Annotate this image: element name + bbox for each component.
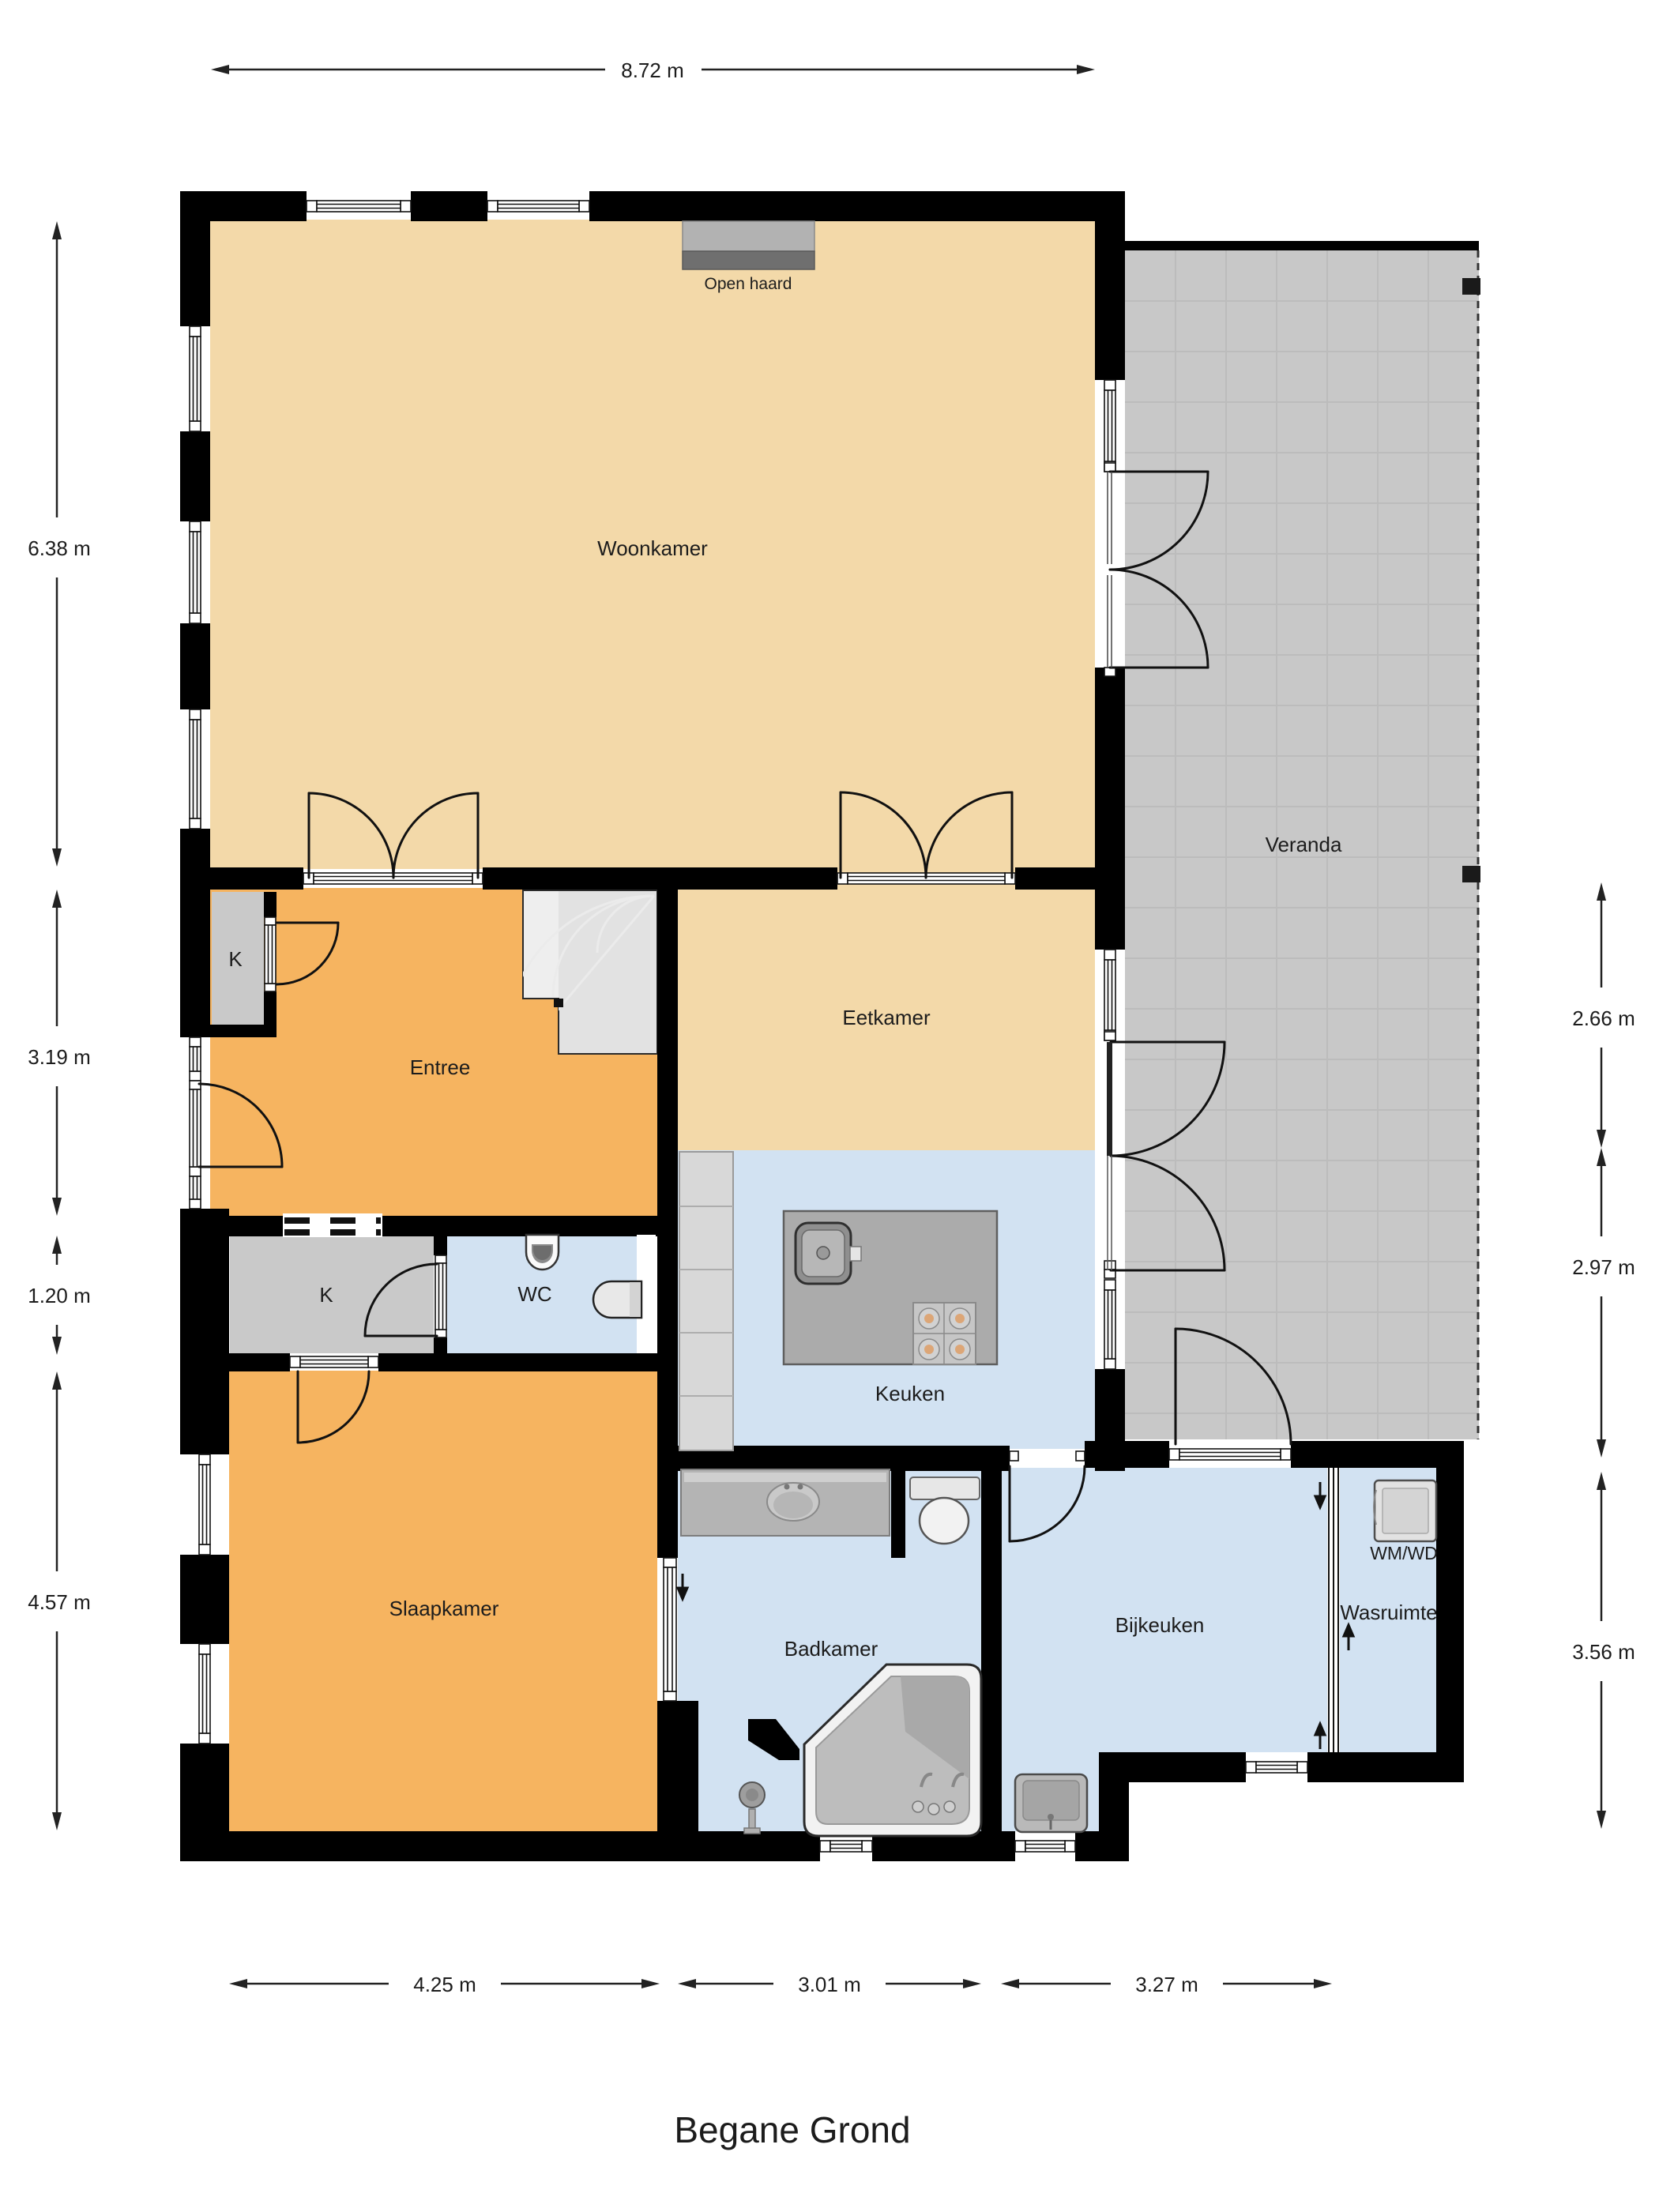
svg-text:Veranda: Veranda [1266, 833, 1342, 856]
svg-text:3.27 m: 3.27 m [1135, 1973, 1198, 1996]
svg-text:Woonkamer: Woonkamer [597, 536, 708, 560]
svg-text:Keuken: Keuken [875, 1382, 945, 1405]
svg-text:Bijkeuken: Bijkeuken [1115, 1613, 1205, 1637]
svg-text:Entree: Entree [410, 1055, 471, 1079]
svg-text:Slaapkamer: Slaapkamer [389, 1597, 499, 1620]
svg-text:Eetkamer: Eetkamer [842, 1006, 931, 1029]
svg-text:3.56 m: 3.56 m [1572, 1640, 1635, 1664]
svg-text:1.20 m: 1.20 m [28, 1284, 91, 1307]
svg-text:Badkamer: Badkamer [784, 1637, 878, 1661]
svg-text:4.57 m: 4.57 m [28, 1590, 91, 1614]
svg-text:4.25 m: 4.25 m [413, 1973, 476, 1996]
svg-text:8.72 m: 8.72 m [621, 58, 684, 82]
svg-text:2.97 m: 2.97 m [1572, 1255, 1635, 1279]
svg-text:K: K [228, 947, 243, 971]
svg-text:WC: WC [517, 1282, 551, 1306]
svg-text:3.01 m: 3.01 m [798, 1973, 861, 1996]
svg-text:Begane Grond: Begane Grond [674, 2109, 910, 2150]
svg-text:6.38 m: 6.38 m [28, 536, 91, 560]
svg-text:Wasruimte: Wasruimte [1340, 1601, 1437, 1624]
svg-text:Open haard: Open haard [705, 275, 792, 293]
svg-text:2.66 m: 2.66 m [1572, 1006, 1635, 1030]
svg-text:WM/WD: WM/WD [1370, 1543, 1438, 1563]
svg-text:K: K [319, 1283, 333, 1307]
svg-text:3.19 m: 3.19 m [28, 1045, 91, 1069]
